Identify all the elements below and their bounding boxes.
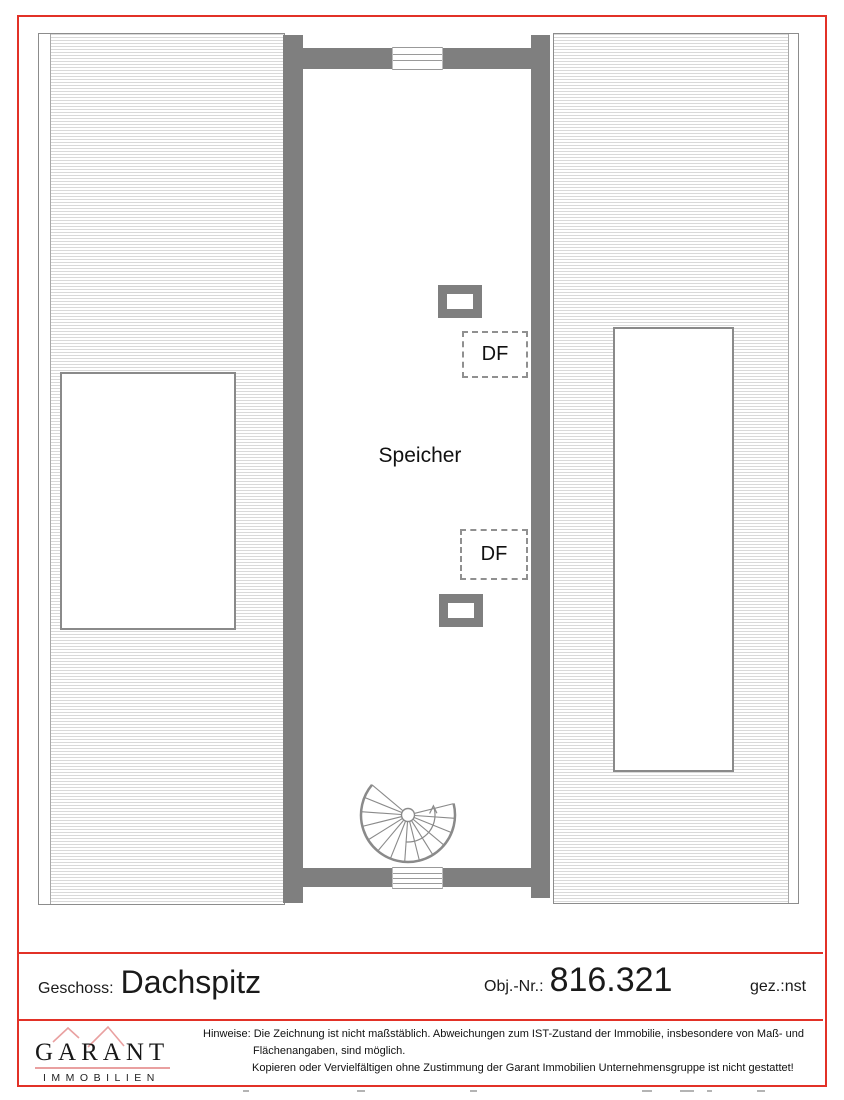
garant-logo: GARANT IMMOBILIEN (28, 1023, 208, 1085)
notes-line-2: Flächenangaben, sind möglich. (253, 1046, 405, 1057)
step-line (393, 54, 442, 55)
left-roof-panel (38, 33, 285, 905)
right-roof-opening (613, 327, 734, 772)
chimney-block-bottom (439, 594, 483, 627)
floor-label: Geschoss: (38, 981, 114, 997)
object-number-label: Obj.-Nr.: (484, 979, 544, 995)
step-line (393, 873, 442, 874)
top-wall-stair-opening (392, 47, 443, 70)
print-artifact-dash (357, 1090, 365, 1092)
floor-title-group: Geschoss: Dachspitz (38, 966, 261, 998)
print-artifact-dash (470, 1090, 477, 1092)
print-artifact-dash (243, 1090, 249, 1092)
df-roof-window-box-1: DF (462, 331, 528, 378)
df-label: DF (482, 343, 509, 366)
logo-title: GARANT (35, 1040, 169, 1065)
corridor-wall-right (531, 35, 550, 898)
left-panel-margin-strip (39, 34, 51, 904)
df-roof-window-box-2: DF (460, 529, 528, 580)
drawn-by-label: gez.:nst (750, 979, 806, 995)
print-artifact-dash (757, 1090, 765, 1092)
room-label-speicher: Speicher (340, 444, 500, 468)
right-panel-margin-strip (788, 34, 798, 903)
step-line (393, 883, 442, 884)
right-roof-panel (553, 33, 799, 904)
object-number-group: Obj.-Nr.: 816.321 (484, 963, 672, 997)
notes-line-1: Hinweise: Die Zeichnung ist nicht maßstä… (203, 1029, 804, 1040)
print-artifact-dash (707, 1090, 712, 1092)
step-line (393, 878, 442, 879)
corridor-wall-left (283, 35, 303, 903)
chimney-block-top (438, 285, 482, 318)
object-number-value: 816.321 (550, 963, 673, 997)
spiral-staircase (352, 763, 464, 867)
bottom-wall-stair-opening (392, 867, 443, 889)
df-label: DF (481, 543, 508, 566)
notes-line-3: Kopieren oder Vervielfältigen ohne Zusti… (252, 1063, 794, 1074)
floor-value: Dachspitz (121, 966, 262, 998)
footer-divider-line (19, 1019, 823, 1021)
logo-subtitle: IMMOBILIEN (43, 1073, 160, 1084)
left-roof-opening (60, 372, 236, 630)
print-artifact-dash (642, 1090, 652, 1092)
title-divider-line (19, 952, 823, 954)
floor-plan-page: DF DF Speicher (0, 0, 844, 1100)
step-line (393, 60, 442, 61)
print-artifact-dash (680, 1090, 694, 1092)
